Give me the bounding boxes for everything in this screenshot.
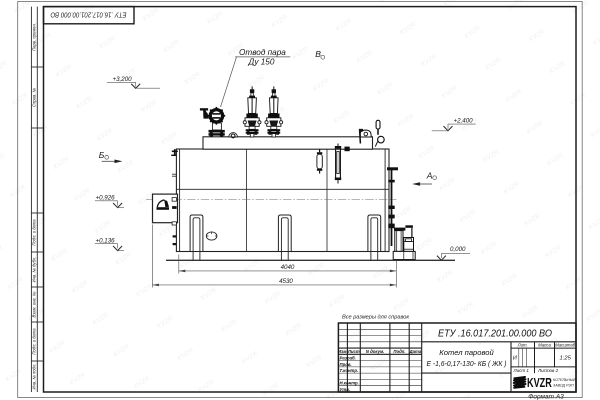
svg-text:Лист 1: Лист 1 xyxy=(513,368,530,373)
svg-text:Инв. № подл.: Инв. № подл. xyxy=(32,364,37,390)
svg-text:Отвод пара: Отвод пара xyxy=(239,48,286,57)
svg-text:Все размеры для справок: Все размеры для справок xyxy=(342,315,409,321)
svg-text:KVZR: KVZR xyxy=(527,375,552,390)
svg-text:Инв. № дубл.: Инв. № дубл. xyxy=(32,257,37,283)
svg-text:И: И xyxy=(513,356,517,362)
svg-text:4530: 4530 xyxy=(279,278,293,285)
svg-text:Лит.: Лит. xyxy=(517,343,528,348)
svg-text:ЗАВОД РЭП: ЗАВОД РЭП xyxy=(553,384,574,388)
svg-text:+0,926: +0,926 xyxy=(96,195,116,202)
svg-text:А: А xyxy=(426,171,433,181)
svg-text:Листов 2: Листов 2 xyxy=(537,368,559,373)
svg-text:0,000: 0,000 xyxy=(450,246,466,253)
svg-text:ЕТУ .16.017.201.00.000 ВО: ЕТУ .16.017.201.00.000 ВО xyxy=(438,328,552,339)
svg-text:ЕТУ .16.017.201.00.000 ВО: ЕТУ .16.017.201.00.000 ВО xyxy=(50,11,126,20)
svg-text:Н.контр.: Н.контр. xyxy=(340,381,359,386)
svg-text:N докум.: N докум. xyxy=(366,349,385,354)
svg-text:+2,400: +2,400 xyxy=(454,118,474,125)
svg-text:Подп. и дата: Подп. и дата xyxy=(32,328,37,355)
svg-text:Масса: Масса xyxy=(538,343,551,348)
svg-text:Утв.: Утв. xyxy=(340,387,351,392)
svg-text:Подп.: Подп. xyxy=(393,349,405,354)
svg-text:Перв. примен.: Перв. примен. xyxy=(32,23,37,51)
svg-text:Лист: Лист xyxy=(347,349,360,354)
svg-text:Формат А3: Формат А3 xyxy=(528,394,564,400)
svg-text:Ду 150: Ду 150 xyxy=(248,58,275,67)
svg-text:Разраб.: Разраб. xyxy=(340,356,356,361)
svg-text:Подп. и дата: Подп. и дата xyxy=(32,219,37,246)
svg-text:4040: 4040 xyxy=(281,264,295,271)
svg-text:+3,200: +3,200 xyxy=(113,76,133,83)
svg-text:Б: Б xyxy=(99,150,105,160)
svg-text:Т.контр.: Т.контр. xyxy=(340,368,359,373)
svg-text:Пров.: Пров. xyxy=(340,362,352,367)
svg-text:Масштаб: Масштаб xyxy=(555,343,576,348)
svg-text:Справ. №: Справ. № xyxy=(32,88,37,107)
svg-text:В: В xyxy=(315,49,321,59)
svg-text:Дата: Дата xyxy=(409,349,422,354)
svg-text:Взам. инв. №: Взам. инв. № xyxy=(32,291,37,317)
svg-text:Е -1,6-0,17-130- КБ ( ЖК ): Е -1,6-0,17-130- КБ ( ЖК ) xyxy=(427,359,507,368)
svg-text:КОТЕЛЬНЫЙ: КОТЕЛЬНЫЙ xyxy=(553,378,576,382)
svg-text:1:25: 1:25 xyxy=(560,356,572,362)
svg-text:Изм.: Изм. xyxy=(338,349,348,354)
svg-text:Котел паровой: Котел паровой xyxy=(439,348,494,357)
